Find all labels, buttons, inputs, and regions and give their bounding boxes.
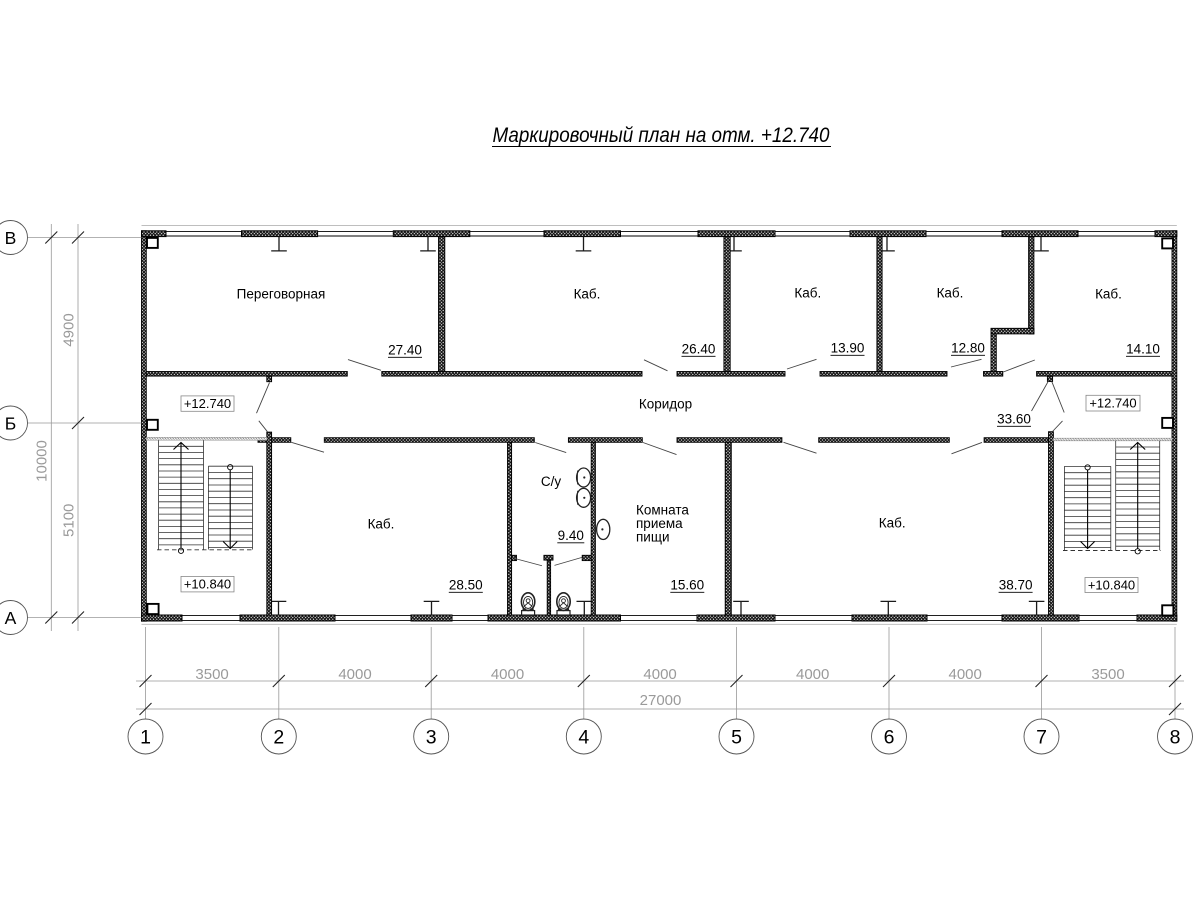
svg-text:26.40: 26.40: [682, 341, 716, 356]
svg-text:38.70: 38.70: [999, 577, 1033, 592]
svg-text:Коридор: Коридор: [639, 397, 692, 412]
svg-text:3500: 3500: [195, 666, 228, 683]
svg-text:4000: 4000: [796, 666, 829, 683]
svg-text:4000: 4000: [491, 666, 524, 683]
svg-text:4900: 4900: [61, 313, 78, 346]
svg-text:+12.740: +12.740: [184, 396, 231, 411]
svg-text:27000: 27000: [640, 692, 682, 709]
svg-text:14.10: 14.10: [1126, 341, 1160, 356]
svg-text:Б: Б: [5, 414, 16, 434]
svg-text:Маркировочный план на отм. +12: Маркировочный план на отм. +12.740: [493, 124, 830, 147]
svg-text:33.60: 33.60: [997, 411, 1031, 426]
svg-text:27.40: 27.40: [388, 342, 422, 357]
svg-text:Каб.: Каб.: [574, 287, 601, 302]
svg-text:4000: 4000: [643, 666, 676, 683]
svg-text:Каб.: Каб.: [794, 286, 821, 301]
svg-text:Переговорная: Переговорная: [237, 287, 326, 302]
svg-text:С/у: С/у: [541, 474, 562, 489]
svg-text:4000: 4000: [338, 666, 371, 683]
svg-text:+10.840: +10.840: [184, 576, 231, 591]
svg-text:3500: 3500: [1091, 666, 1124, 683]
svg-text:В: В: [5, 228, 17, 248]
svg-text:28.50: 28.50: [449, 577, 483, 592]
svg-text:2: 2: [273, 727, 284, 749]
svg-text:4: 4: [578, 727, 589, 749]
svg-text:А: А: [5, 608, 17, 628]
svg-text:Каб.: Каб.: [1095, 287, 1122, 302]
svg-text:Каб.: Каб.: [879, 516, 906, 531]
svg-text:+12.740: +12.740: [1089, 396, 1136, 411]
svg-text:Каб.: Каб.: [937, 286, 964, 301]
svg-text:9.40: 9.40: [558, 528, 584, 543]
svg-text:13.90: 13.90: [831, 340, 865, 355]
svg-text:пищи: пищи: [636, 530, 670, 545]
svg-text:15.60: 15.60: [670, 577, 704, 592]
svg-text:10000: 10000: [34, 440, 51, 482]
svg-text:3: 3: [426, 727, 437, 749]
svg-text:12.80: 12.80: [951, 340, 985, 355]
svg-text:4000: 4000: [949, 666, 982, 683]
svg-text:8: 8: [1170, 727, 1181, 749]
svg-text:7: 7: [1036, 727, 1047, 749]
svg-text:+10.840: +10.840: [1088, 577, 1135, 592]
svg-text:1: 1: [140, 727, 151, 749]
svg-text:5: 5: [731, 727, 742, 749]
svg-text:6: 6: [884, 727, 895, 749]
svg-text:Каб.: Каб.: [368, 517, 395, 532]
svg-text:5100: 5100: [61, 504, 78, 537]
